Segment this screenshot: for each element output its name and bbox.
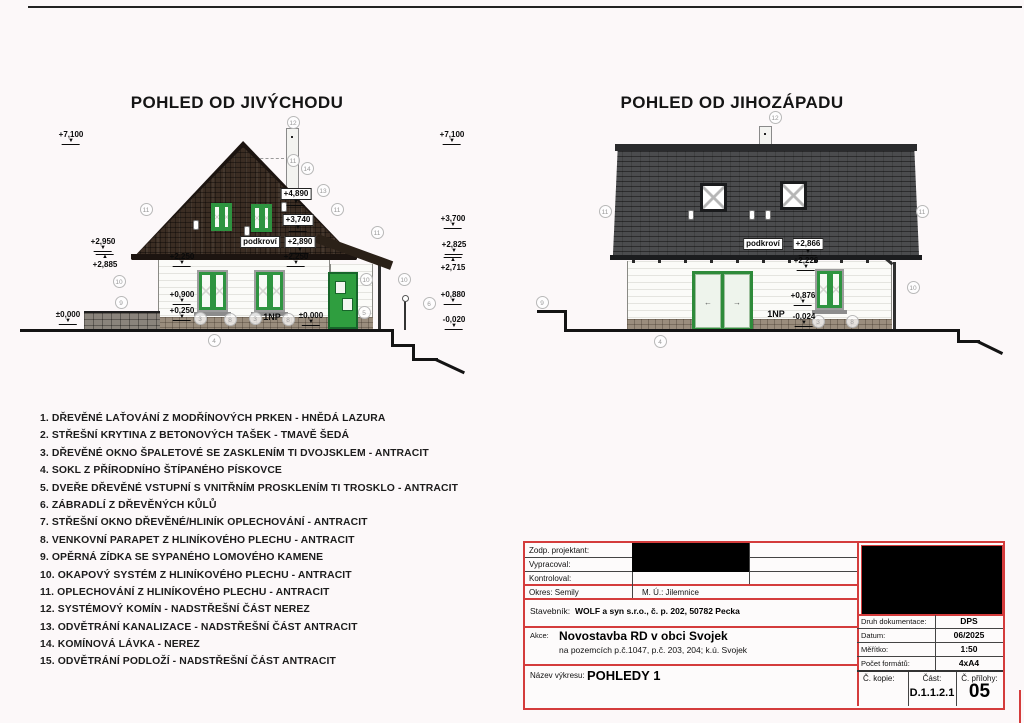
legend-reference-circle: 10 xyxy=(398,273,411,286)
elevation-mark: 1NP xyxy=(262,313,282,322)
redacted-stamp-box xyxy=(861,545,1003,615)
elevation-mark: ▲+2,885 xyxy=(92,254,119,269)
legend-reference-circle: 9 xyxy=(536,296,549,309)
legend-reference-circle: 6 xyxy=(423,297,436,310)
elevation-mark: +7,100▼ xyxy=(439,130,466,145)
prepared-by-label: Vypracoval: xyxy=(529,560,571,569)
elevation-mark: ±0,000▼ xyxy=(298,311,324,326)
project-label: Akce: xyxy=(530,631,549,640)
builder-label: Stavebník: xyxy=(530,606,570,616)
municipality-value: M. Ú.: Jilemnice xyxy=(642,588,699,597)
legend-reference-circle: 11 xyxy=(916,205,929,218)
legend-reference-circle: 3 xyxy=(249,312,262,325)
attachment-number-value: 05 xyxy=(956,681,1003,703)
builder-value: WOLF a syn s.r.o., č. p. 202, 50782 Peck… xyxy=(575,606,740,616)
elevation-mark: 1NP xyxy=(766,310,786,319)
elevation-mark: podkroví xyxy=(743,238,783,250)
format-count-label: Počet formátů: xyxy=(861,659,910,668)
format-count-value: 4xA4 xyxy=(935,658,1003,668)
scale-value: 1:50 xyxy=(935,644,1003,654)
legend-reference-circle: 11 xyxy=(287,154,300,167)
part-label: Část: xyxy=(908,674,956,683)
elevation-mark: +2,825▼ xyxy=(441,240,468,255)
legend-reference-circle: 11 xyxy=(371,226,384,239)
legend-reference-circle: 12 xyxy=(287,116,300,129)
redacted-name-box xyxy=(632,543,749,572)
elevation-mark: -0,024▼ xyxy=(792,312,817,327)
legend-reference-circle: 12 xyxy=(769,111,782,124)
elevation-mark: +4,890▼ xyxy=(281,188,312,206)
legend-reference-circle: 8 xyxy=(846,315,859,328)
legend-reference-circle: 11 xyxy=(599,205,612,218)
date-value: 06/2025 xyxy=(935,630,1003,640)
scale-label: Měřítko: xyxy=(861,645,888,654)
elevation-mark: -0,020▼ xyxy=(442,315,467,330)
doc-type-label: Druh dokumentace: xyxy=(861,617,926,626)
elevation-mark: +2,250▼ xyxy=(283,252,310,267)
legend-reference-circle: 10 xyxy=(113,275,126,288)
elevation-mark: +0,880▼ xyxy=(440,290,467,305)
elevation-mark: +2,866▼ xyxy=(793,238,824,256)
legend-reference-circle: 10 xyxy=(907,281,920,294)
legend-reference-circle: 4 xyxy=(654,335,667,348)
date-label: Datum: xyxy=(861,631,885,640)
doc-type-value: DPS xyxy=(935,616,1003,626)
elevation-mark: +2,226▼ xyxy=(793,256,820,271)
drawing-name-label: Název výkresu: xyxy=(530,671,585,680)
copy-number-label: Č. kopie: xyxy=(863,674,895,683)
legend-reference-circle: 13 xyxy=(317,184,330,197)
legend-reference-circle: 11 xyxy=(140,203,153,216)
elevation-mark: +2,950▼ xyxy=(90,237,117,252)
drawing-name-value: POHLEDY 1 xyxy=(587,668,660,683)
elevation-mark: ▲+2,715 xyxy=(440,257,467,272)
elevation-mark: ±0,000▼ xyxy=(55,310,81,325)
legend-reference-circle: 9 xyxy=(115,296,128,309)
part-value: D.1.1.2.1 xyxy=(908,687,956,699)
legend-reference-circle: 4 xyxy=(208,334,221,347)
legend-reference-circle: 3 xyxy=(194,312,207,325)
legend-reference-circle: 8 xyxy=(282,313,295,326)
legend-reference-circle: 10 xyxy=(360,273,373,286)
elevation-mark: podkroví xyxy=(240,236,280,248)
elevation-mark: +0,250▼ xyxy=(169,306,196,321)
elevation-mark: +3,740▼ xyxy=(283,214,314,232)
elevation-mark: +0,900▼ xyxy=(169,290,196,305)
legend-reference-circle: 8 xyxy=(224,313,237,326)
elevation-mark: +3,700▼ xyxy=(440,214,467,229)
title-block: Zodp. projektant: Vypracoval: Kontrolova… xyxy=(523,541,1005,710)
district-value: Okres: Semily xyxy=(529,588,579,597)
responsible-designer-label: Zodp. projektant: xyxy=(529,546,589,555)
legend-reference-circle: 5 xyxy=(358,306,371,319)
legend-reference-circle: 11 xyxy=(331,203,344,216)
elevation-mark: +0,876▼ xyxy=(790,291,817,306)
elevation-mark: +2,250▼ xyxy=(169,252,196,267)
project-title: Novostavba RD v obci Svojek xyxy=(559,629,728,643)
checked-by-label: Kontroloval: xyxy=(529,574,571,583)
project-parcels: na pozemcích p.č.1047, p.č. 203, 204; k.… xyxy=(559,645,747,655)
legend-reference-circle: 14 xyxy=(301,162,314,175)
elevation-mark: +7,100▼ xyxy=(58,130,85,145)
